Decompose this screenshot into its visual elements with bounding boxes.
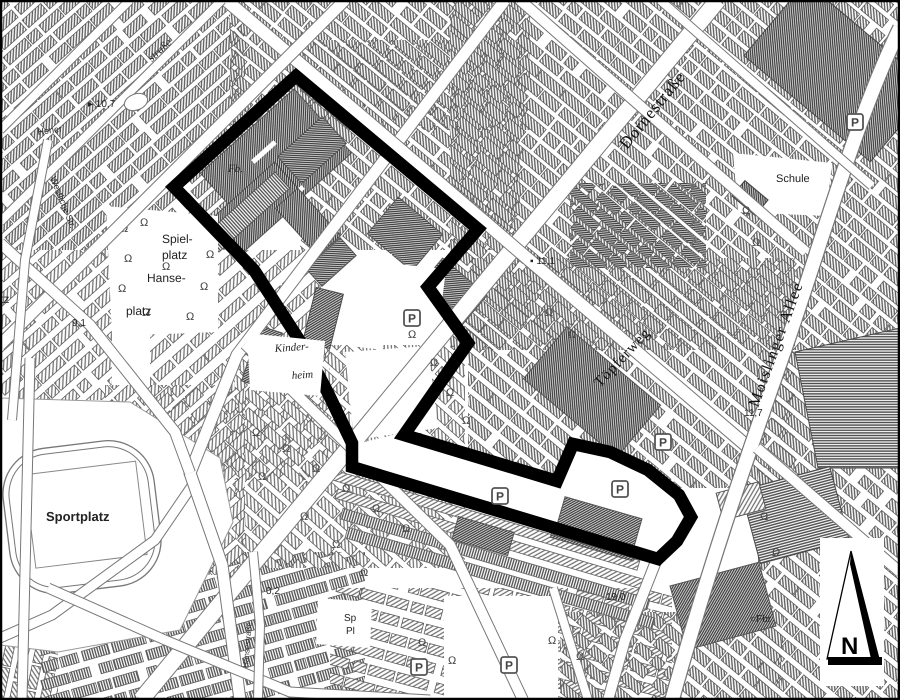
svg-text:Hanse-: Hanse-: [147, 271, 186, 285]
svg-text:platz: platz: [162, 248, 187, 262]
svg-text:▸ 10,7: ▸ 10,7: [88, 99, 116, 110]
svg-text:P: P: [505, 658, 513, 672]
svg-text:19,0: 19,0: [606, 592, 626, 603]
svg-text:Ω: Ω: [462, 415, 470, 427]
svg-text:N: N: [841, 633, 858, 660]
svg-text:Sp: Sp: [344, 613, 357, 624]
svg-text:Sportplatz: Sportplatz: [46, 509, 110, 524]
svg-text:Ω: Ω: [360, 567, 368, 579]
svg-text:0,2: 0,2: [266, 586, 280, 597]
svg-text:Ω: Ω: [186, 311, 194, 323]
svg-text:Ω: Ω: [206, 249, 214, 261]
svg-text:Ω: Ω: [124, 253, 132, 265]
svg-text:P: P: [659, 435, 667, 449]
svg-text:Ω: Ω: [140, 217, 148, 229]
svg-text:Pl: Pl: [346, 626, 355, 637]
svg-text:Ω: Ω: [576, 651, 584, 663]
svg-text:Ω: Ω: [252, 427, 260, 439]
svg-text:Fb.: Fb.: [227, 163, 243, 175]
svg-text:P: P: [415, 660, 423, 674]
svg-text:Ω: Ω: [568, 329, 576, 341]
svg-text:Ω: Ω: [312, 463, 320, 475]
svg-text:P: P: [408, 311, 416, 325]
svg-text:Ω: Ω: [282, 443, 290, 455]
svg-text:Ω: Ω: [118, 283, 126, 295]
svg-text:Schule: Schule: [776, 173, 810, 185]
svg-text:P: P: [496, 489, 504, 503]
svg-text:▪ 11,1: ▪ 11,1: [530, 256, 555, 267]
svg-text:Ω: Ω: [548, 635, 556, 647]
svg-text:Ω: Ω: [300, 511, 308, 523]
svg-text:Ω: Ω: [408, 329, 416, 341]
svg-text:Ω: Ω: [760, 511, 768, 523]
svg-text:heim: heim: [291, 369, 313, 382]
svg-text:Ω: Ω: [446, 387, 454, 399]
svg-text:Ω: Ω: [342, 483, 350, 495]
svg-text:Kinder-: Kinder-: [273, 341, 309, 355]
svg-text:Ω: Ω: [772, 547, 780, 559]
svg-text:Ω: Ω: [372, 503, 380, 515]
svg-text:Ω: Ω: [402, 523, 410, 535]
svg-text:P: P: [616, 482, 624, 496]
svg-text:Ω: Ω: [200, 281, 208, 293]
svg-text:Ω: Ω: [545, 307, 553, 319]
svg-text:Spiel-: Spiel-: [162, 232, 193, 246]
svg-text:Ω: Ω: [418, 637, 426, 649]
svg-text:○Fbr: ○Fbr: [750, 614, 772, 625]
svg-text:Ω: Ω: [448, 655, 456, 667]
svg-text:Ω: Ω: [332, 539, 340, 551]
svg-text:platz: platz: [126, 304, 151, 318]
svg-text:Ω: Ω: [430, 357, 438, 369]
svg-text:Ω: Ω: [752, 237, 760, 249]
svg-text:9,1: 9,1: [72, 318, 86, 329]
svg-text:Ω: Ω: [258, 471, 266, 483]
svg-text:Ω: Ω: [742, 205, 750, 217]
svg-text:P: P: [851, 115, 859, 129]
